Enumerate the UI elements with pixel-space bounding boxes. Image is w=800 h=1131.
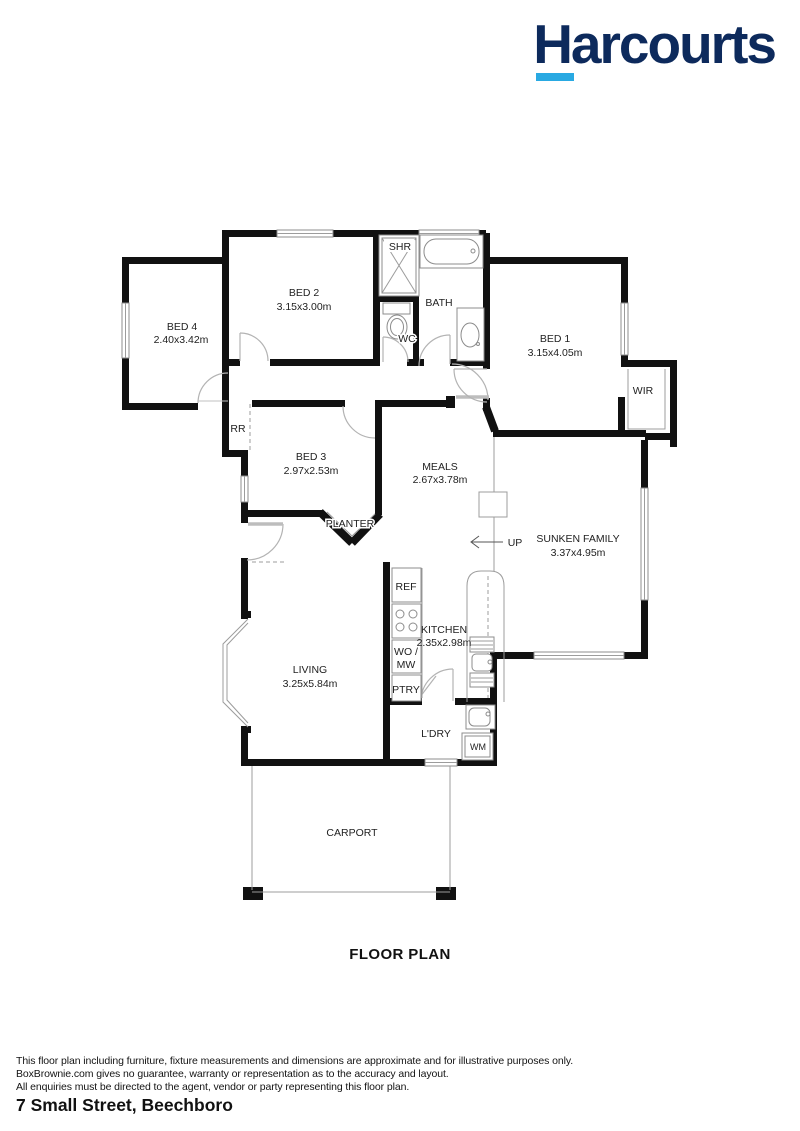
fixture-label-washing-machine: WM	[470, 742, 486, 752]
room-dims-family: 3.37x4.95m	[551, 547, 606, 559]
room-label-bed3: BED 3	[296, 451, 327, 463]
room-label-rr: RR	[230, 423, 246, 435]
room-dims-bed1: 3.15x4.05m	[528, 347, 583, 359]
disclaimer-line-3: All enquiries must be directed to the ag…	[16, 1081, 786, 1094]
label-up: UP	[508, 537, 523, 549]
disclaimer-line-2: BoxBrownie.com gives no guarantee, warra…	[16, 1068, 786, 1081]
fixture-label-wall-oven: WO /	[394, 646, 418, 658]
room-label-kitchen: KITCHEN	[421, 624, 467, 636]
room-dims-kitchen: 2.35x2.98m	[417, 637, 472, 649]
bathtub	[420, 235, 483, 268]
kitchen-island	[467, 571, 504, 702]
room-label-planter: PLANTER	[326, 518, 375, 530]
room-label-wir: WIR	[633, 385, 654, 397]
fixture-label-pantry: PTRY	[392, 684, 420, 696]
room-label-bath: BATH	[425, 297, 452, 309]
disclaimer-line-1: This floor plan including furniture, fix…	[16, 1055, 786, 1068]
laundry-trough	[466, 705, 495, 729]
room-label-laundry: L'DRY	[421, 728, 451, 740]
room-label-living: LIVING	[293, 664, 327, 676]
vanity-basin	[457, 308, 484, 361]
property-address: 7 Small Street, Beechboro	[16, 1095, 233, 1116]
room-dims-bed2: 3.15x3.00m	[277, 301, 332, 313]
room-label-shower: SHR	[389, 241, 412, 253]
room-dims-bed3: 2.97x2.53m	[284, 465, 339, 477]
room-dims-living: 3.25x5.84m	[283, 678, 338, 690]
room-dims-meals: 2.67x3.78m	[413, 474, 468, 486]
room-label-bed2: BED 2	[289, 287, 320, 299]
page-title: FLOOR PLAN	[0, 946, 800, 963]
room-label-bed4: BED 4	[167, 321, 198, 333]
room-label-meals: MEALS	[422, 461, 458, 473]
room-label-carport: CARPORT	[326, 827, 378, 839]
fixture-label-microwave: MW	[397, 659, 416, 671]
disclaimer: This floor plan including furniture, fix…	[16, 1055, 786, 1095]
up-arrow	[471, 536, 503, 548]
room-label-bed1: BED 1	[540, 333, 571, 345]
fixture-label-fridge: REF	[396, 581, 417, 593]
room-label-family: SUNKEN FAMILY	[536, 533, 619, 545]
bay-window	[223, 619, 248, 727]
room-label-wc: WC	[398, 333, 416, 345]
room-dims-bed4: 2.40x3.42m	[154, 334, 209, 346]
